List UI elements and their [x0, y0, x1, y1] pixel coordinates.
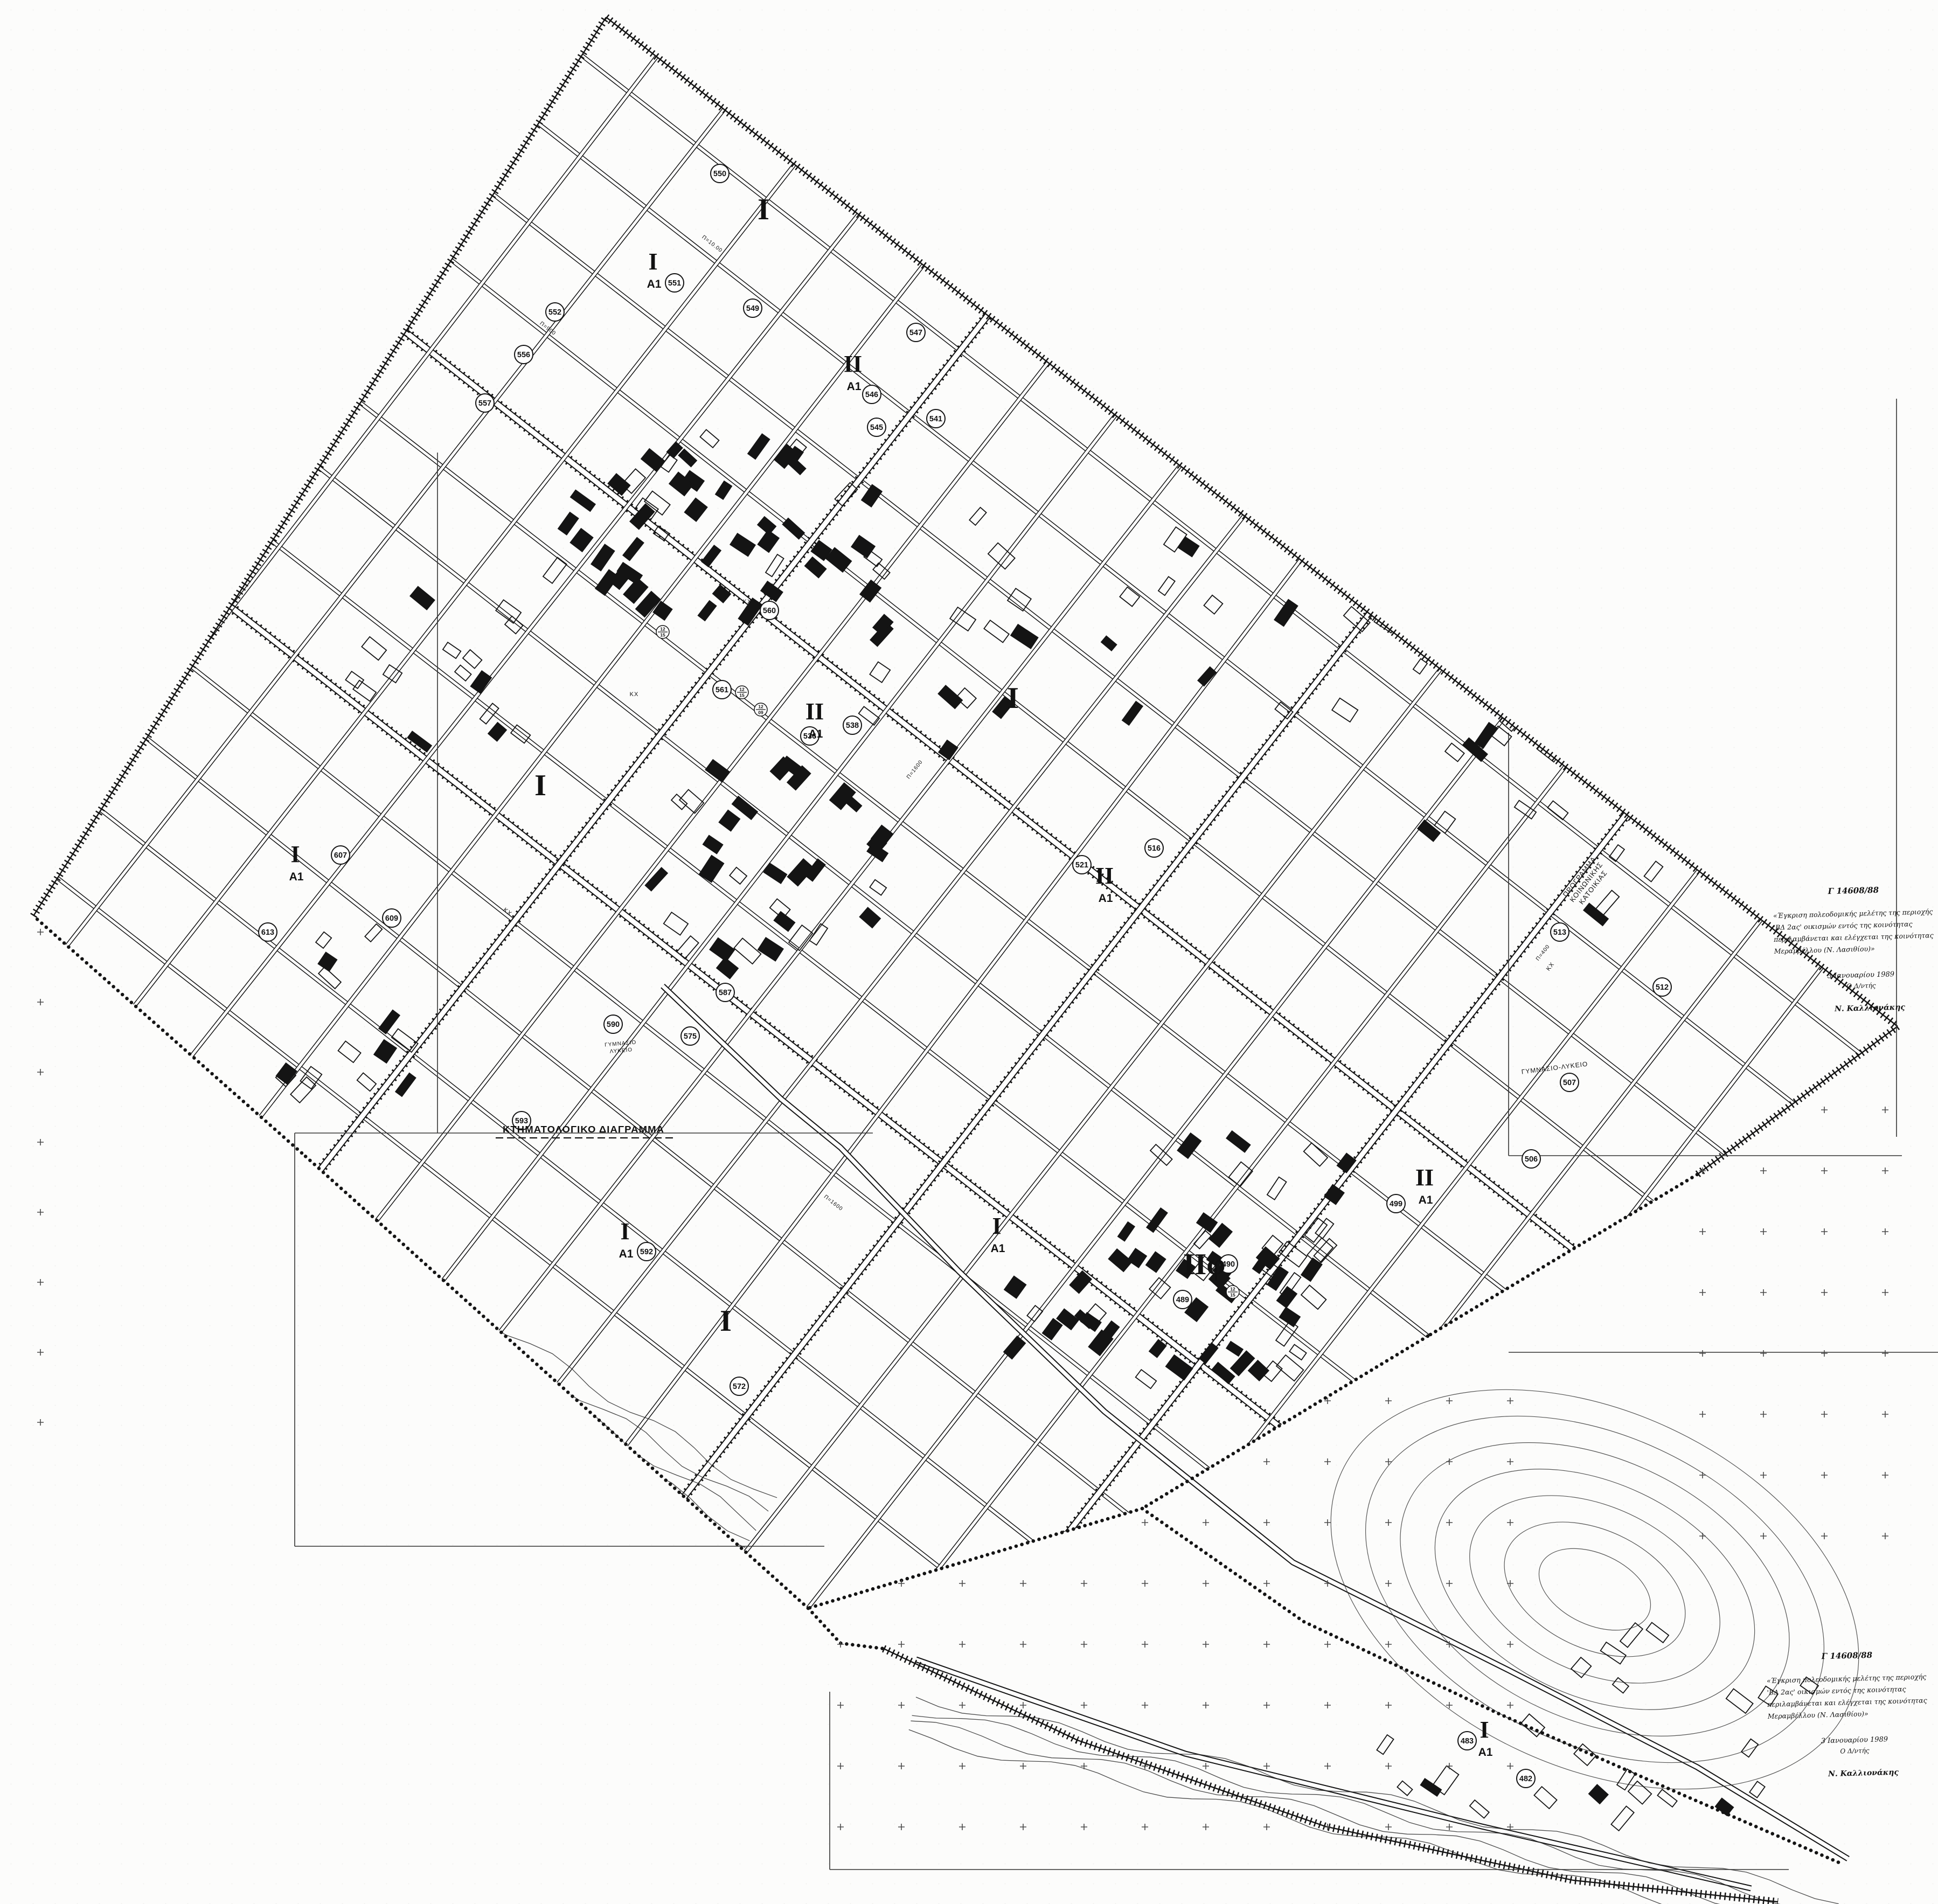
zone-sub-code: A1: [1478, 1746, 1493, 1759]
zone-sub-code: A1: [1419, 1194, 1433, 1206]
building: [1589, 1784, 1608, 1804]
benchmark: 1215: [735, 686, 748, 699]
building: [783, 518, 804, 539]
building: [558, 512, 579, 535]
zone-label: ΙΙφ: [1183, 1248, 1226, 1281]
approval-notes: Γ 14608/88«Έγκριση πολεοδομικής μελέτης …: [1766, 884, 1936, 1780]
building: [1146, 1252, 1165, 1273]
building: [318, 953, 337, 971]
plus-mark: [1263, 1519, 1270, 1526]
plus-mark: [1699, 1350, 1706, 1357]
plus-mark: [1507, 1580, 1513, 1587]
plus-mark: [1507, 1458, 1513, 1465]
benchmark-top: 12: [739, 687, 745, 692]
boundary-edge-6-dots: [33, 916, 302, 1153]
building: [1611, 1806, 1634, 1831]
block-number: 590: [604, 1015, 622, 1033]
plus-mark: [1203, 1580, 1209, 1587]
plus-mark: [37, 1349, 44, 1356]
building: [685, 498, 707, 522]
building: [710, 938, 734, 961]
block-number-text: 572: [733, 1382, 746, 1391]
plus-mark: [1385, 1519, 1392, 1526]
building: [859, 706, 879, 725]
coast-road-fill: [663, 986, 1848, 1859]
building: [1601, 1642, 1626, 1664]
plus-mark: [1203, 1763, 1209, 1769]
note-body-line: περιλαμβάνεται και ελέγχεται της κοινότη…: [1767, 1696, 1927, 1708]
plus-mark: [37, 1139, 44, 1145]
map-label-text: ΚΧ: [743, 599, 752, 605]
contour-ring: [1440, 1458, 1750, 1720]
building: [862, 485, 882, 507]
building: [357, 1073, 376, 1091]
block-number: 592: [637, 1242, 656, 1261]
map-label: ΓΥΜΝΑΣΙΟ-ΛΥΚΕΙΟ: [1521, 1060, 1588, 1076]
block-number-text: 482: [1519, 1775, 1532, 1783]
block-number: 512: [1653, 978, 1671, 996]
building: [1267, 1177, 1287, 1200]
plus-mark: [1882, 1472, 1888, 1478]
zone-sub-code: A1: [647, 278, 662, 290]
building: [1301, 1258, 1322, 1281]
plus-mark: [1821, 1168, 1828, 1174]
building: [1136, 1370, 1157, 1388]
block-number-text: 561: [716, 686, 728, 694]
map-title: ΚΤΗΜΑΤΟΛΟΓΙΚΟ ΔΙΑΓΡΑΜΜΑ: [503, 1124, 664, 1135]
plus-mark: [1760, 1411, 1767, 1417]
block-number-text: 489: [1176, 1296, 1189, 1304]
approval-note-0: Γ 14608/88«Έγκριση πολεοδομικής μελέτης …: [1772, 884, 1936, 1015]
note-reference: Γ 14608/88: [1827, 885, 1879, 897]
building: [488, 722, 506, 741]
plus-mark: [1081, 1824, 1087, 1830]
block-number: 607: [331, 846, 350, 864]
block-number: 507: [1560, 1073, 1579, 1092]
plus-mark: [1385, 1763, 1392, 1769]
plus-mark: [1821, 1107, 1828, 1113]
plus-mark: [1507, 1519, 1513, 1526]
zone-sub-code: A1: [289, 871, 304, 883]
note-signature: Ν. Καλλιονάκης: [1828, 1768, 1899, 1778]
building: [764, 863, 787, 884]
block-number: 613: [259, 923, 277, 941]
zone-roman-numeral: I: [648, 248, 657, 275]
plus-mark: [1020, 1702, 1026, 1708]
block-number: 560: [760, 601, 779, 620]
settlement-boundary: [33, 17, 1898, 1902]
plus-mark: [837, 1702, 844, 1708]
plus-mark: [837, 1641, 844, 1648]
building: [748, 434, 769, 459]
street-casing: [0, 0, 706, 1013]
plus-mark: [37, 1419, 44, 1426]
plus-mark: [1385, 1398, 1392, 1404]
street-fill: [0, 737, 1358, 1894]
building: [1101, 636, 1116, 650]
plus-mark: [959, 1824, 965, 1830]
plus-mark: [1142, 1519, 1148, 1526]
plus-mark: [1882, 1289, 1888, 1296]
block-number: 489: [1173, 1290, 1192, 1309]
map-label-text: ΚΧ: [630, 691, 639, 698]
zone-sub-code: A1: [991, 1242, 1005, 1255]
block-number-text: 575: [684, 1032, 697, 1041]
plus-mark: [1446, 1398, 1453, 1404]
building: [1149, 1339, 1166, 1357]
building: [766, 554, 784, 576]
block-number-text: 613: [261, 928, 274, 937]
plus-mark: [1324, 1458, 1331, 1465]
plus-mark: [1760, 1228, 1767, 1235]
plus-mark: [1699, 1289, 1706, 1296]
map-label: ΓΥΜΝΑΣΙΟΛΥΚΕΙΟ: [605, 1039, 637, 1055]
building: [1583, 904, 1608, 926]
zone-sub-code: A1: [619, 1248, 634, 1260]
plus-mark: [1324, 1641, 1331, 1648]
block-number-text: 513: [1553, 928, 1566, 937]
building: [1696, 762, 1715, 781]
building: [730, 867, 747, 884]
plus-mark: [1324, 1702, 1331, 1708]
block-number: 550: [711, 164, 729, 183]
boundary-edge-1-rail: [1697, 1026, 1898, 1175]
plus-mark: [1263, 1763, 1270, 1769]
plus-mark: [959, 1763, 965, 1769]
plus-mark: [1020, 1580, 1026, 1587]
building: [353, 680, 376, 701]
plus-mark: [1699, 1533, 1706, 1539]
map-label-text: ΛΥΚΕΙΟ: [609, 1047, 633, 1055]
building: [443, 642, 461, 658]
tail-road-casing: [916, 1659, 1751, 1888]
plus-mark: [1760, 1350, 1767, 1357]
coast-road-casing: [663, 986, 1848, 1859]
building: [1226, 1342, 1243, 1356]
plus-mark: [1507, 1763, 1513, 1769]
block-number-text: 483: [1461, 1737, 1474, 1746]
plus-mark: [1821, 1533, 1828, 1539]
plus-mark: [898, 1763, 905, 1769]
building: [734, 938, 761, 964]
block-number-text: 521: [1075, 861, 1088, 870]
building: [623, 538, 643, 561]
map-label-text: Π=400: [1535, 943, 1551, 962]
map-label: ΚΧ: [743, 599, 752, 605]
note-signer-role: Ο Δ/ντής: [1846, 982, 1876, 990]
block-number-text: 506: [1525, 1155, 1538, 1164]
block-number-text: 560: [763, 607, 776, 615]
plus-mark: [1081, 1641, 1087, 1648]
benchmark: 1215: [656, 626, 669, 638]
building: [1534, 1787, 1557, 1809]
zone-roman-numeral: II: [1095, 863, 1114, 889]
zone-roman-numeral: I: [1007, 682, 1019, 715]
zone-label: I: [534, 769, 546, 802]
plus-mark: [1507, 1398, 1513, 1404]
building: [950, 607, 976, 631]
street-fill: [0, 0, 706, 1013]
plus-mark: [1699, 1472, 1706, 1478]
contour-ring: [1397, 1421, 1794, 1757]
contour-ring: [1267, 1310, 1923, 1868]
block-number: 499: [1387, 1194, 1405, 1213]
note-body-line: περιλαμβάνεται και ελέγχεται της κοινότη…: [1773, 931, 1934, 943]
block-number: 609: [383, 909, 401, 927]
plus-mark: [1760, 1289, 1767, 1296]
plus-mark: [1821, 1411, 1828, 1417]
plus-mark: [1760, 1472, 1767, 1478]
block-number: 552: [546, 303, 564, 321]
map-canvas: 5505515495525565575475465455415605615385…: [0, 0, 1938, 1904]
block-number-text: 557: [478, 399, 491, 408]
zone-label: IIA1: [805, 698, 824, 740]
block-number-text: 609: [385, 914, 398, 923]
boundary-edge-2-dots: [1428, 1175, 1697, 1336]
block-number-text: 499: [1390, 1200, 1402, 1208]
building: [1655, 780, 1675, 800]
benchmark: 1209: [754, 703, 767, 716]
plus-mark: [1142, 1580, 1148, 1587]
map-label: Π=400: [1535, 943, 1551, 962]
plus-mark: [1263, 1580, 1270, 1587]
plus-mark: [1020, 1824, 1026, 1830]
zone-label: IIA1: [1095, 863, 1114, 905]
building: [362, 637, 386, 660]
building: [1158, 576, 1175, 595]
building: [870, 662, 890, 683]
building: [395, 1073, 415, 1096]
plus-mark: [1203, 1702, 1209, 1708]
street-fill: [0, 49, 772, 1060]
building: [1470, 1800, 1489, 1818]
building: [641, 449, 664, 471]
plus-mark: [1446, 1519, 1453, 1526]
street-grid: [0, 0, 1938, 1904]
plus-mark: [1081, 1702, 1087, 1708]
building: [703, 836, 723, 854]
block-number-text: 607: [334, 851, 347, 860]
block-number: 549: [744, 299, 762, 317]
note-date: 3 Ιανουαρίου 1989: [1821, 1735, 1888, 1745]
plus-mark: [1760, 1533, 1767, 1539]
building: [1011, 624, 1038, 649]
building: [1332, 698, 1358, 722]
building: [338, 1041, 361, 1062]
plus-mark: [1020, 1641, 1026, 1648]
plus-mark: [1760, 1168, 1767, 1174]
block-number: 506: [1522, 1150, 1540, 1168]
building: [758, 530, 779, 552]
block-number: 551: [665, 274, 684, 292]
building: [984, 620, 1009, 642]
zone-label: I: [1007, 682, 1019, 715]
block-number: 483: [1458, 1732, 1476, 1750]
note-body-line: «Έγκριση πολεοδομικής μελέτης της περιοχ…: [1767, 1672, 1927, 1685]
building: [870, 880, 886, 895]
building: [1413, 659, 1427, 674]
building: [1421, 1778, 1442, 1796]
plus-mark: [959, 1702, 965, 1708]
zone-label: IA1: [647, 248, 662, 290]
cadastral-map: 5505515495525565575475465455415605615385…: [0, 0, 1938, 1904]
zone-roman-numeral: ΙΙφ: [1183, 1248, 1226, 1281]
plus-mark: [959, 1580, 965, 1587]
building: [1289, 1344, 1306, 1360]
plus-mark: [1020, 1763, 1026, 1769]
building: [543, 557, 567, 583]
building: [463, 650, 482, 669]
zone-label: I: [720, 1304, 732, 1338]
plus-mark: [1882, 1350, 1888, 1357]
block-number: 587: [716, 983, 734, 1002]
plus-mark: [1699, 1411, 1706, 1417]
plus-mark: [1203, 1824, 1209, 1830]
plus-mark: [37, 999, 44, 1005]
map-label-text: ΚΧ: [1545, 961, 1556, 972]
zone-roman-numeral: I: [290, 841, 300, 867]
building: [1445, 743, 1464, 761]
block-number: 545: [867, 418, 886, 436]
building: [717, 958, 738, 979]
tail-road-fill: [916, 1659, 1751, 1888]
building: [719, 810, 740, 831]
block-number: 575: [681, 1027, 699, 1045]
block-number-text: 541: [929, 415, 942, 423]
plus-mark: [1882, 1533, 1888, 1539]
map-label-text: ΓΥΜΝΑΣΙΟ-ΛΥΚΕΙΟ: [1521, 1060, 1588, 1076]
street-fill: [1018, 857, 1810, 1873]
building: [1242, 492, 1267, 516]
plus-mark: [837, 1824, 844, 1830]
zone-roman-numeral: I: [534, 769, 546, 802]
building: [571, 490, 595, 511]
note-body-line: 'ΒΔ 2ας' οικισμών εντός της κοινότητας: [1773, 920, 1912, 932]
benchmark-top: 12: [660, 627, 665, 632]
plus-mark: [1203, 1519, 1209, 1526]
block-number: 516: [1145, 839, 1163, 857]
block-number-text: 592: [640, 1248, 653, 1256]
tail-boundary-2-dots: [808, 1608, 884, 1649]
building: [1377, 1735, 1393, 1754]
street-fill: [493, 451, 1295, 1467]
approval-note-1: Γ 14608/88«Έγκριση πολεοδομικής μελέτης …: [1766, 1649, 1929, 1780]
plus-mark: [1882, 1107, 1888, 1113]
zone-label: IA1: [1478, 1717, 1493, 1759]
block-number: 538: [843, 716, 862, 734]
zone-label: I: [758, 193, 769, 226]
plus-mark: [1385, 1702, 1392, 1708]
building: [1456, 666, 1475, 684]
benchmark-bottom: 15: [739, 693, 745, 698]
map-label-text: Π=1600: [823, 1194, 844, 1212]
block-number: 482: [1517, 1769, 1535, 1788]
building: [1420, 506, 1443, 531]
plus-mark: [1263, 1824, 1270, 1830]
plus-mark: [1081, 1763, 1087, 1769]
block-number: 556: [515, 345, 533, 364]
block-number-text: 538: [846, 721, 859, 730]
building: [1726, 1689, 1753, 1714]
zone-roman-numeral: I: [720, 1304, 732, 1338]
plus-mark: [959, 1641, 965, 1648]
block-number: 547: [907, 323, 925, 342]
building: [1248, 1360, 1269, 1381]
building: [1383, 579, 1407, 601]
plus-mark: [1324, 1763, 1331, 1769]
plus-mark: [898, 1580, 905, 1587]
zone-roman-numeral: I: [758, 193, 769, 226]
building: [730, 533, 755, 556]
map-label: Π=1600: [906, 759, 924, 780]
block-number-text: 552: [548, 308, 561, 317]
benchmark: 1215: [1226, 1285, 1239, 1298]
plus-mark: [37, 1069, 44, 1075]
building: [1311, 531, 1335, 559]
plus-mark: [1446, 1580, 1453, 1587]
note-body-line: 'ΒΔ 2ας' οικισμών εντός της κοινότητας: [1767, 1685, 1906, 1697]
building: [1004, 1276, 1026, 1298]
building: [770, 899, 790, 918]
building: [969, 508, 986, 525]
plus-mark: [1507, 1702, 1513, 1708]
block-number-text: 547: [909, 329, 922, 337]
building: [1128, 1248, 1147, 1267]
boundary-edge-3-dots: [1142, 1336, 1428, 1509]
building: [1304, 1143, 1328, 1166]
building: [1475, 722, 1497, 748]
plus-mark: [898, 1641, 905, 1648]
plus-mark: [1324, 1519, 1331, 1526]
contour-ring: [1310, 1347, 1879, 1832]
building: [1620, 1623, 1643, 1647]
map-label: ΠΡΟΓΡΑΜΜΑΚΟΙΝΩΝΙΚΗΣΚΑΤΟΙΚΙΑΣ: [1561, 855, 1611, 909]
plus-mark: [1882, 1411, 1888, 1417]
zone-label: IA1: [991, 1213, 1005, 1255]
block-number: 546: [863, 385, 881, 404]
zone-label: IIA1: [1415, 1164, 1434, 1206]
map-label: ΚΧ: [630, 691, 639, 698]
plus-mark: [1446, 1763, 1453, 1769]
plus-mark: [837, 1763, 844, 1769]
note-body-line: Μεραμβέλλου (Ν. Λασιθίου)»: [1774, 944, 1875, 955]
benchmark-top: 12: [758, 704, 763, 710]
block-number-text: 556: [517, 351, 530, 359]
block-number-text: 516: [1148, 844, 1161, 853]
building: [1178, 537, 1199, 557]
building: [698, 601, 717, 621]
plus-mark: [1821, 1228, 1828, 1235]
plus-mark: [1882, 1168, 1888, 1174]
plus-mark: [1821, 1472, 1828, 1478]
contour-ring: [1353, 1384, 1837, 1795]
plus-mark: [1142, 1824, 1148, 1830]
building: [664, 912, 688, 935]
building: [1609, 845, 1624, 861]
contour-line: [323, 1262, 749, 1541]
plus-mark: [1081, 1580, 1087, 1587]
block-number-text: 549: [746, 304, 759, 313]
zone-sub-code: A1: [847, 380, 862, 393]
building: [1749, 1781, 1765, 1797]
block-number: 561: [713, 680, 731, 699]
plus-mark: [37, 1279, 44, 1285]
block-number: 557: [476, 394, 494, 412]
block-number-text: 587: [719, 989, 732, 997]
benchmark-top: 12: [1230, 1287, 1235, 1292]
building: [455, 665, 471, 681]
zone-roman-numeral: II: [844, 351, 862, 377]
